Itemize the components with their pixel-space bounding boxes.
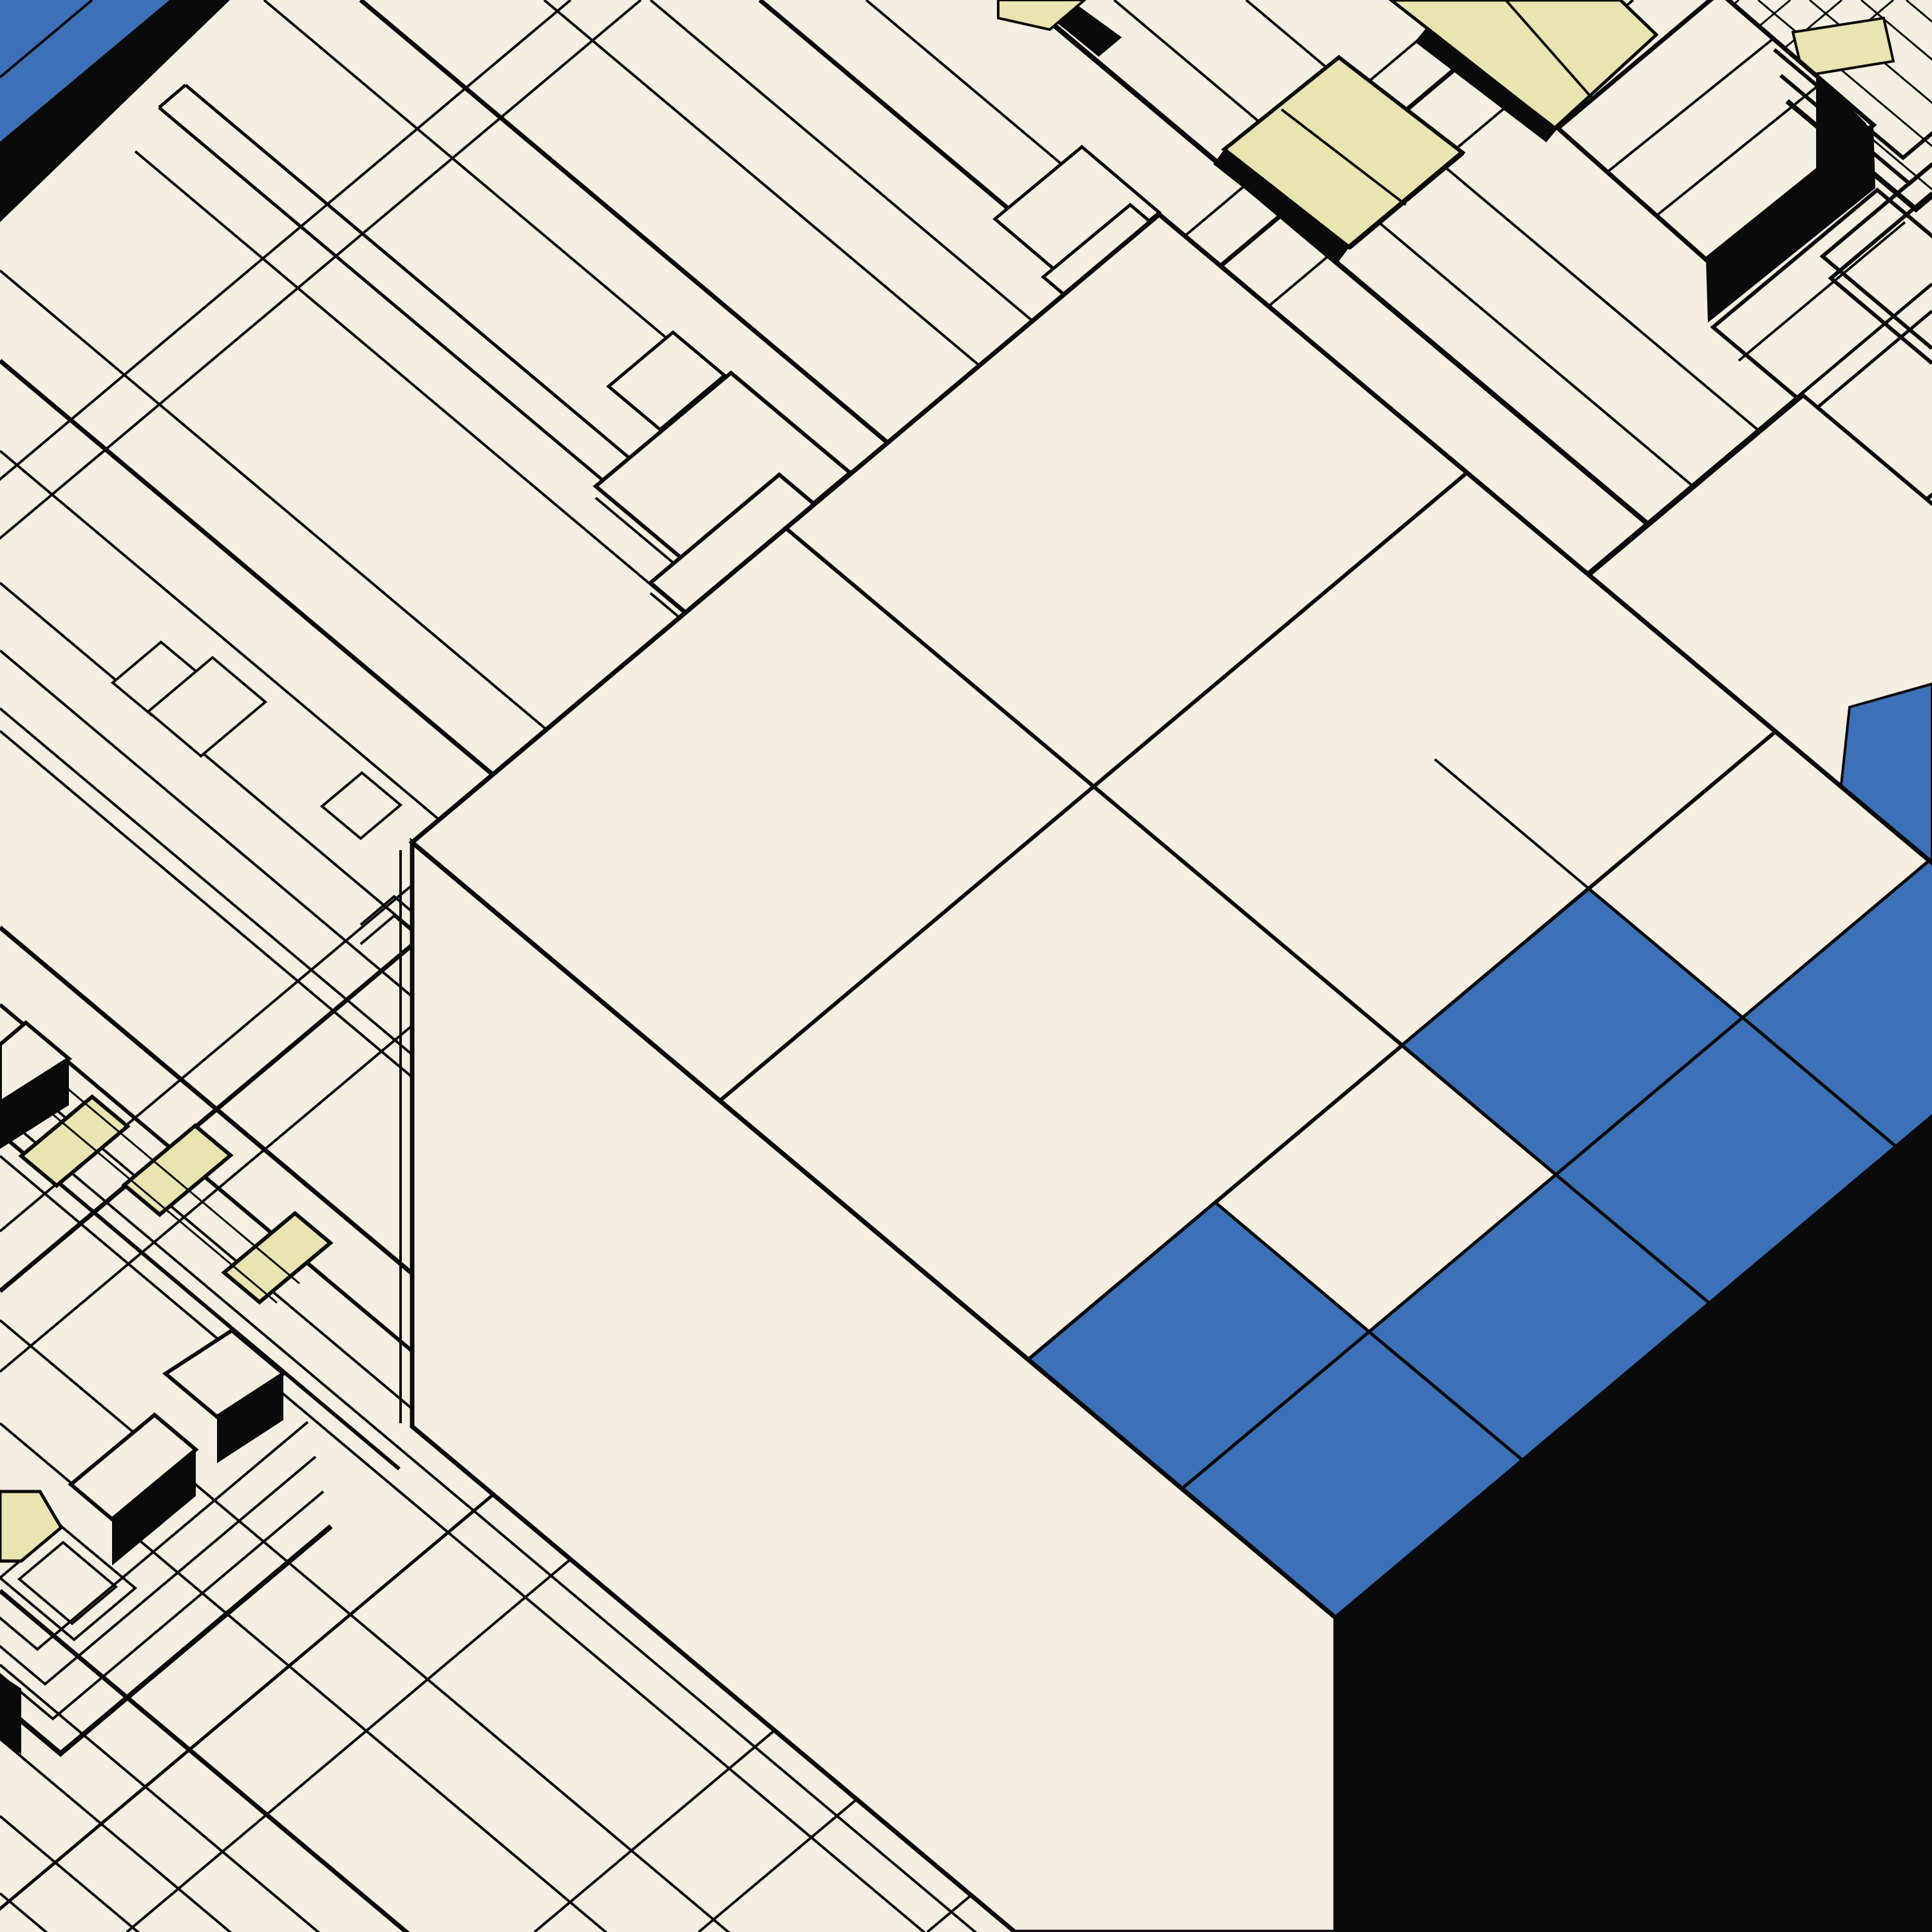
isometric-artwork	[0, 0, 1932, 1932]
artwork-stage	[0, 0, 1932, 1932]
